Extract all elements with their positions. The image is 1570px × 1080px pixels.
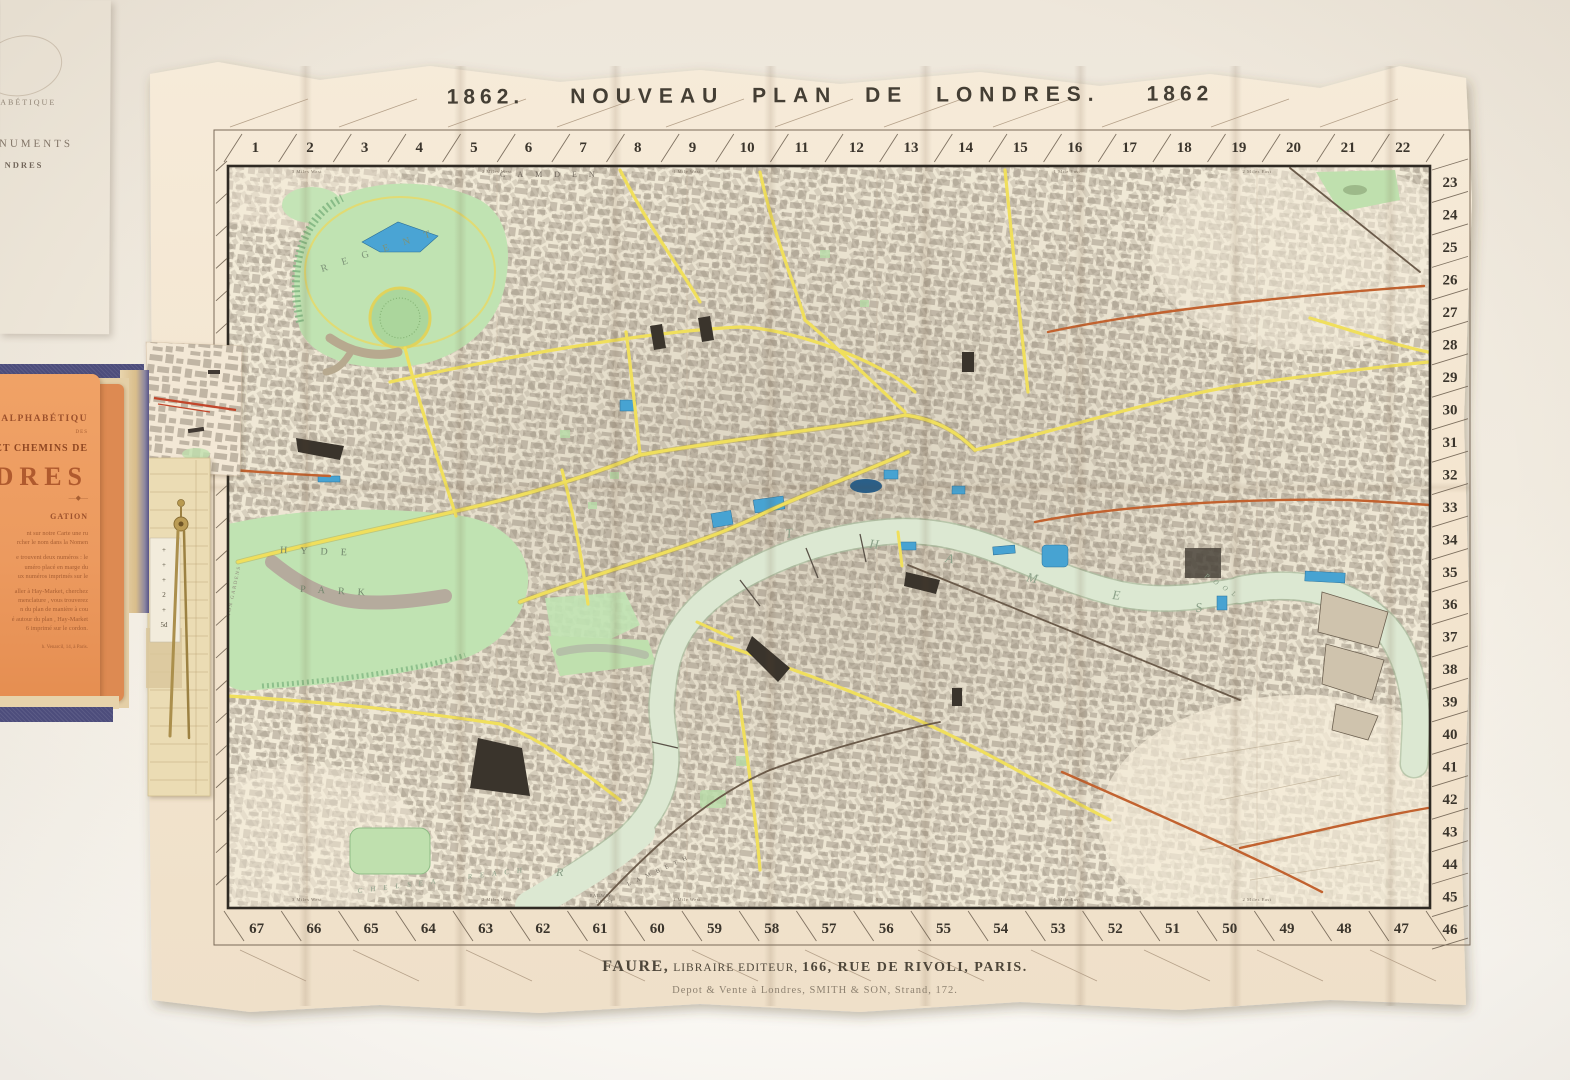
grid-number: 6 — [525, 140, 533, 156]
place-label: R — [555, 865, 564, 879]
paragraph-fragment-line: e trouvent deux numéros : le — [0, 553, 88, 562]
grid-number: 50 — [1222, 921, 1237, 937]
scale-mark: + — [162, 606, 166, 614]
grid-number: 10 — [740, 140, 755, 156]
place-label: H — [868, 536, 880, 552]
scale-mark: + — [162, 546, 166, 554]
paragraph-fragment-line: é autour du plan , Hay-Market — [0, 615, 88, 624]
title-main: NOUVEAU PLAN DE LONDRES. — [570, 83, 1100, 109]
grid-number: 51 — [1165, 921, 1180, 937]
mile-marker: 0 — [876, 897, 879, 902]
grid-number: 1 — [252, 140, 260, 156]
grid-number: 64 — [421, 921, 437, 937]
case-cover-bottom-edge — [0, 707, 113, 722]
grid-number: 2 — [306, 140, 314, 156]
grid-number: 27 — [1443, 305, 1459, 321]
grid-number: 61 — [593, 921, 608, 937]
grid-number: 52 — [1108, 921, 1123, 937]
map-svg: 3 Miles West2 Miles West1 Mile West1 Mil… — [0, 0, 1570, 1080]
grid-number: 34 — [1443, 532, 1459, 548]
publisher-role: LIBRAIRE EDITEUR, — [673, 962, 798, 974]
grid-number: 20 — [1286, 140, 1301, 156]
grid-number: 36 — [1443, 597, 1459, 613]
place-label: CAMDEN — [500, 170, 607, 179]
booklet-footer-fragment: h. Venarcil, 14, à Paris. — [0, 645, 88, 650]
grid-number: 24 — [1443, 208, 1459, 224]
scale-mark: 5d — [161, 621, 169, 629]
scale-ruler-strip: +++2+5d — [146, 458, 210, 796]
grid-number: 40 — [1443, 727, 1458, 743]
grid-number: 18 — [1177, 140, 1192, 156]
mile-marker: 2 Miles East — [1243, 169, 1272, 174]
grid-number: 25 — [1443, 240, 1458, 256]
grid-number: 66 — [306, 921, 322, 937]
grid-number: 13 — [904, 140, 919, 156]
grid-number: 56 — [879, 921, 895, 937]
grid-number: 5 — [470, 140, 478, 156]
grid-number: 55 — [936, 921, 951, 937]
grid-number: 53 — [1050, 921, 1065, 937]
grid-number: 44 — [1443, 857, 1459, 873]
mile-marker: 1 Mile West — [673, 169, 701, 174]
grid-number: 30 — [1443, 402, 1458, 418]
ornament-rule: —◆— — [0, 494, 88, 502]
grid-number: 46 — [1443, 922, 1459, 938]
scale-mark: + — [162, 576, 166, 584]
scale-mark: 2 — [162, 591, 166, 599]
grid-number: 60 — [650, 921, 665, 937]
section-heading-fragment: GATION — [0, 512, 88, 521]
depot-line: Depot & Vente à Londres, SMITH & SON, St… — [430, 985, 1200, 996]
grid-number: 31 — [1443, 435, 1458, 451]
grid-numbers-bottom: 6766656463626160595857565554535251504948… — [249, 921, 1409, 937]
grid-number: 15 — [1013, 140, 1028, 156]
grid-number: 21 — [1341, 140, 1356, 156]
booklet-title-fragment-2: S ET CHEMINS DE — [0, 443, 88, 454]
publisher-name: FAURE, — [602, 958, 669, 975]
grid-number: 19 — [1231, 140, 1246, 156]
map-fragment-piece — [146, 342, 242, 476]
scale-mark: + — [162, 561, 166, 569]
grid-number: 9 — [689, 140, 697, 156]
grid-number: 17 — [1122, 140, 1138, 156]
booklet-subtitle-fragment: DES — [0, 430, 88, 435]
grid-number: 8 — [634, 140, 642, 156]
paragraph-fragment-line: ux numéros imprimés sur le — [0, 572, 88, 581]
grid-number: 48 — [1337, 921, 1352, 937]
grid-number: 57 — [822, 921, 838, 937]
grid-number: 58 — [764, 921, 779, 937]
grid-number: 67 — [249, 921, 265, 937]
grid-number: 3 — [361, 140, 369, 156]
instructions-paragraph-fragments: nt sur notre Carte une rurcher le nom da… — [0, 529, 88, 633]
title-year-left: 1862. — [447, 85, 525, 109]
grid-number: 42 — [1443, 792, 1458, 808]
grid-number: 38 — [1443, 662, 1458, 678]
paragraph-fragment-line: aller à Hay-Market, cherchez — [0, 587, 88, 596]
mile-marker: 2 Miles West — [482, 897, 512, 902]
grid-number: 47 — [1394, 921, 1410, 937]
map-plate: 3 Miles West2 Miles West1 Mile West1 Mil… — [180, 140, 1500, 945]
grid-number: 11 — [795, 140, 809, 156]
paragraph-fragment-line: n du plan de manière à cou — [0, 605, 88, 614]
photo-of-antique-map: 3 Miles West2 Miles West1 Mile West1 Mil… — [0, 0, 1570, 1080]
battersea-park — [350, 828, 430, 874]
grid-number: 26 — [1443, 273, 1459, 289]
grid-number: 65 — [364, 921, 379, 937]
grid-number: 12 — [849, 140, 864, 156]
grid-number: 23 — [1443, 175, 1458, 191]
grid-number: 29 — [1443, 370, 1458, 386]
grid-number: 22 — [1395, 140, 1410, 156]
paragraph-fragment-line: rcher le nom dans la Nomen — [0, 538, 88, 547]
paragraph-fragment-line: 6 imprimé sur le cordon. — [0, 624, 88, 633]
paragraph-fragment-line: uméro placé en marge du — [0, 563, 88, 572]
grid-number: 37 — [1443, 630, 1459, 646]
paragraph-fragment-line: menclature , vous trouverez — [0, 596, 88, 605]
map-title: 1862. NOUVEAU PLAN DE LONDRES. 1862 — [330, 82, 1330, 110]
grid-number: 14 — [958, 140, 974, 156]
booklet-title-large-fragment: DRES — [0, 462, 88, 492]
paragraph-fragment-line: nt sur notre Carte une ru — [0, 529, 88, 538]
grid-number: 32 — [1443, 467, 1458, 483]
grid-number: 28 — [1443, 338, 1458, 354]
grid-number: 59 — [707, 921, 722, 937]
grid-number: 54 — [993, 921, 1009, 937]
title-year-right: 1862 — [1147, 82, 1214, 106]
grid-number: 16 — [1067, 140, 1083, 156]
grid-number: 41 — [1443, 760, 1458, 776]
grid-number: 63 — [478, 921, 493, 937]
publisher-address: 166, RUE DE RIVOLI, PARIS. — [802, 960, 1028, 975]
booklet-title-fragment: E ALPHABÉTIQU — [0, 414, 88, 424]
grid-number: 33 — [1443, 500, 1458, 516]
grid-number: 45 — [1443, 889, 1458, 905]
grid-number: 62 — [535, 921, 550, 937]
grid-number: 39 — [1443, 695, 1458, 711]
publisher-line: FAURE, LIBRAIRE EDITEUR, 166, RUE DE RIV… — [430, 958, 1200, 976]
grid-number: 35 — [1443, 565, 1458, 581]
grid-number: 4 — [415, 140, 423, 156]
grid-number: 43 — [1443, 824, 1458, 840]
mile-marker: 2 Miles East — [1243, 897, 1272, 902]
orange-instructions-page: E ALPHABÉTIQU DES S ET CHEMINS DE DRES —… — [0, 374, 100, 710]
place-label: RAILWAY — [590, 893, 611, 898]
grid-number: 7 — [579, 140, 587, 156]
grid-number: 49 — [1279, 921, 1294, 937]
mile-marker: 1 Mile West — [673, 897, 701, 902]
place-label: E — [1111, 587, 1121, 603]
